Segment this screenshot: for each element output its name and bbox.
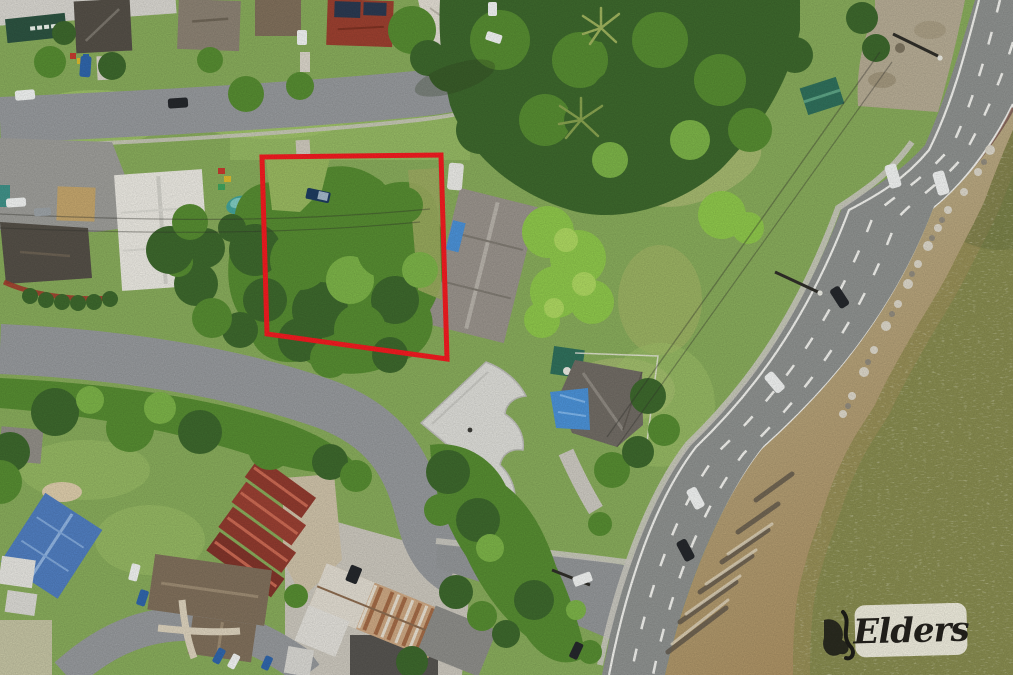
aerial-photo-canvas: Elders	[0, 0, 1013, 675]
drone-photo-grain	[0, 0, 1013, 675]
aerial-photo: Elders	[0, 0, 1013, 675]
